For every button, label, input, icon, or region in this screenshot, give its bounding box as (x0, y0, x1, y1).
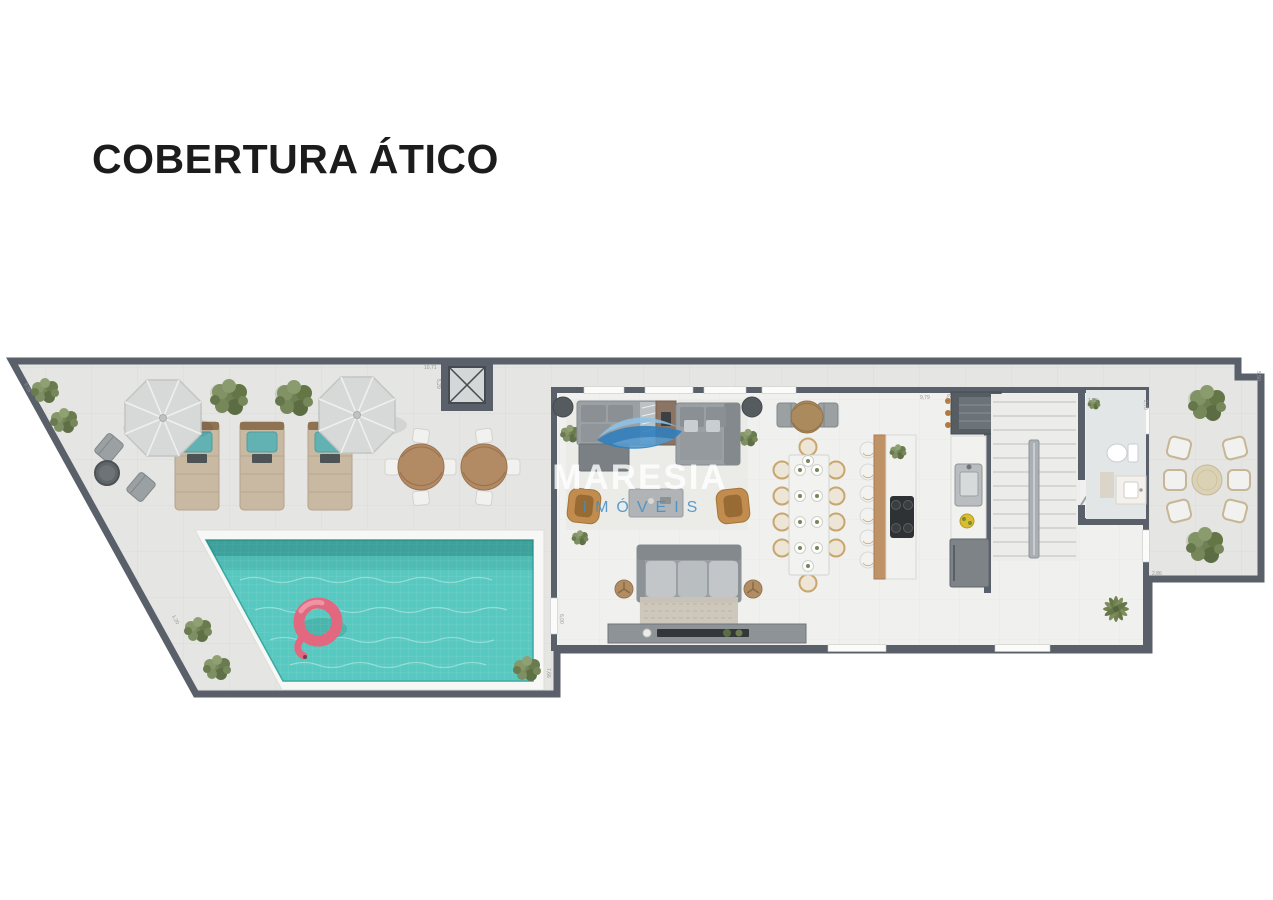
dim-label: 1,50 (1088, 398, 1098, 404)
dim-label: 7,66 (545, 668, 551, 678)
dim-label: 10,71 (424, 365, 437, 371)
dim-label: 2,86 (1152, 571, 1162, 577)
dim-label: 9,79 (920, 395, 930, 401)
planter-pot (553, 397, 573, 417)
coffee-table (629, 489, 683, 517)
sink-counter (951, 436, 986, 540)
armchair (715, 487, 750, 524)
toilet (1107, 444, 1138, 462)
kitchen-island (874, 435, 916, 579)
lounge-sofa (676, 403, 740, 465)
tv (657, 629, 749, 637)
sink (960, 472, 978, 496)
bathroom (1086, 390, 1146, 519)
bathroom-wall (1078, 390, 1085, 480)
dim-label: 6,00 (558, 614, 564, 624)
bath-mat (1100, 472, 1114, 498)
vase (643, 629, 651, 637)
three-seat-sofa (637, 545, 741, 602)
round-bistro-table (791, 401, 823, 433)
page: { "page": { "title": "COBERTURA ÁTICO" }… (0, 0, 1273, 900)
elevator (441, 359, 493, 411)
floor-plan: 9,55 10,71 5,29 9,79 6,75 1,50 2,70 5,50… (0, 0, 1273, 900)
refrigerator (950, 539, 989, 587)
tv-rug (640, 597, 738, 628)
planter-pot (742, 397, 762, 417)
dim-label: 6,75 (945, 394, 951, 404)
fruit-bowl (960, 514, 974, 528)
vanity (1116, 476, 1146, 504)
ottoman (579, 444, 629, 471)
tv-console (608, 624, 806, 643)
staircase (991, 394, 1078, 561)
dim-label: 2,70 (1142, 400, 1148, 410)
dim-label: 5,29 (435, 379, 441, 389)
dim-label: 5,50 (1255, 371, 1261, 381)
armchair (566, 487, 601, 524)
